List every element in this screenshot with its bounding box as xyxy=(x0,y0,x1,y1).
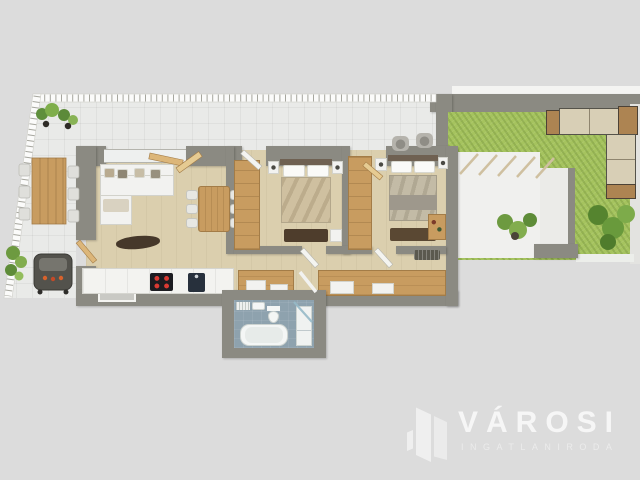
brand-name: VÁROSI xyxy=(458,406,621,440)
bathroom-door-leaf xyxy=(300,272,316,292)
terrace-potted-plants xyxy=(36,103,78,129)
bbq-grill xyxy=(34,254,72,295)
brand-logo: VÁROSI INGATLANIRODA xyxy=(402,398,634,462)
floorplan-render: VÁROSI INGATLANIRODA xyxy=(0,0,640,480)
bedroom2-door-leaf xyxy=(374,248,392,268)
bedroom1-door-leaf xyxy=(300,248,318,268)
garden-plants xyxy=(497,205,635,250)
buildings-icon xyxy=(434,416,447,460)
brand-tagline: INGATLANIRODA xyxy=(461,442,618,452)
living-open-door-leaf xyxy=(149,153,184,166)
terrace-dining-table xyxy=(32,158,66,224)
terrace-corner-plant xyxy=(5,246,27,281)
pergola-beams xyxy=(460,154,554,178)
buildings-icon xyxy=(407,430,413,451)
buildings-icon xyxy=(416,404,431,462)
terrace-door-leaf xyxy=(76,240,97,263)
bedroom2-wardrobe-door-leaf xyxy=(363,162,383,180)
dining-terrace-door-leaf xyxy=(241,150,262,170)
shower-glass-panel xyxy=(294,302,312,322)
